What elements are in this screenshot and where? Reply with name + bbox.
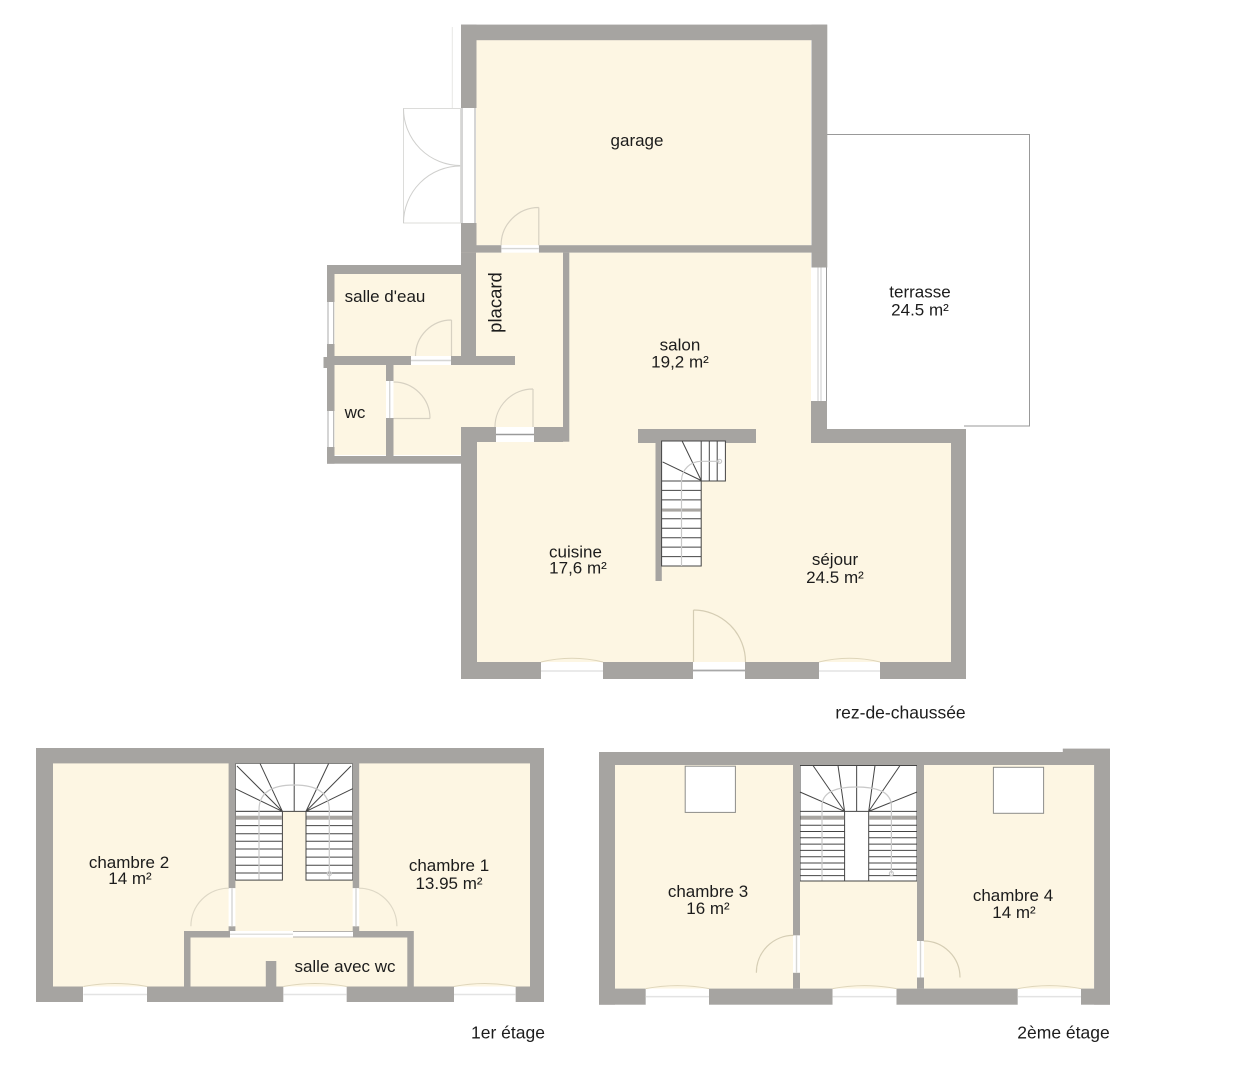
svg-text:2ème étage: 2ème étage	[1017, 1022, 1109, 1042]
svg-text:wc: wc	[344, 403, 366, 422]
svg-text:14 m²: 14 m²	[992, 903, 1036, 922]
svg-text:salle avec wc: salle avec wc	[294, 957, 396, 976]
svg-text:terrasse: terrasse	[889, 283, 950, 302]
svg-text:24.5 m²: 24.5 m²	[891, 301, 949, 320]
svg-text:placard: placard	[485, 272, 506, 333]
svg-text:17,6 m²: 17,6 m²	[549, 559, 607, 578]
svg-text:salle d'eau: salle d'eau	[345, 287, 426, 306]
svg-text:14 m²: 14 m²	[108, 869, 152, 888]
svg-text:13.95 m²: 13.95 m²	[415, 874, 482, 893]
svg-text:19,2 m²: 19,2 m²	[651, 353, 709, 372]
svg-text:chambre 1: chambre 1	[409, 856, 489, 875]
svg-text:16 m²: 16 m²	[686, 899, 730, 918]
svg-text:24.5 m²: 24.5 m²	[806, 568, 864, 587]
svg-text:1er étage: 1er étage	[471, 1022, 545, 1042]
svg-text:rez-de-chaussée: rez-de-chaussée	[835, 703, 965, 723]
svg-text:garage: garage	[611, 131, 664, 150]
svg-text:séjour: séjour	[812, 550, 859, 569]
